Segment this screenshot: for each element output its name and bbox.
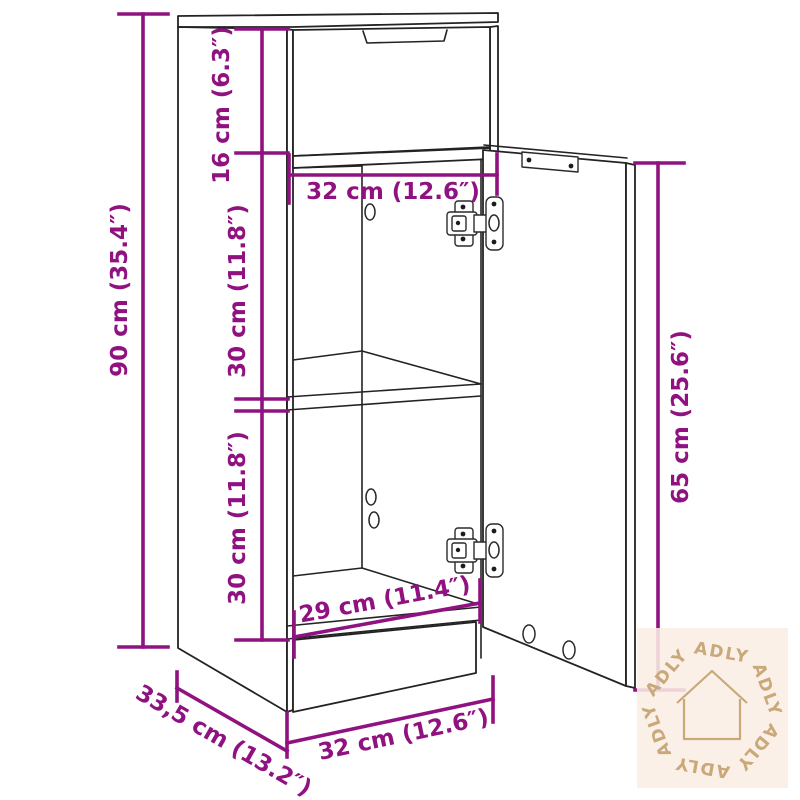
shelf-pin-holes-back	[365, 204, 379, 528]
top-panel	[178, 13, 498, 27]
drawer-front	[293, 27, 490, 156]
dim-total-height: 90 cm (35.4″)	[107, 14, 168, 647]
dim-drawer-height-label: 16 cm (6.3″)	[209, 26, 235, 184]
handle-screw	[527, 158, 532, 163]
handle-screw	[569, 164, 574, 169]
cabinet-diagram-svg: 90 cm (35.4″) 16 cm (6.3″) 30 cm (11.8″)…	[0, 0, 800, 800]
front-right-edge	[490, 26, 498, 157]
dim-inner-width-top-label: 32 cm (12.6″)	[306, 179, 480, 205]
dim-compartment-lower-label: 30 cm (11.8″)	[225, 431, 251, 605]
watermark: ADLY ADLY ADLY ADLY ADLY ADLY	[637, 628, 788, 788]
middle-shelf	[287, 351, 481, 410]
dim-door-height-label: 65 cm (25.6″)	[668, 330, 694, 504]
hinge-bottom	[447, 524, 503, 577]
dim-door-height: 65 cm (25.6″)	[635, 163, 694, 690]
dim-total-height-label: 90 cm (35.4″)	[107, 203, 133, 377]
door-edge	[626, 163, 635, 688]
door	[483, 145, 635, 688]
dim-outer-width-bottom-label: 32 cm (12.6″)	[316, 704, 491, 766]
dim-compartment-upper-label: 30 cm (11.8″)	[225, 204, 251, 378]
dimension-diagram: 90 cm (35.4″) 16 cm (6.3″) 30 cm (11.8″)…	[0, 0, 800, 800]
door-inner-face	[483, 150, 626, 686]
